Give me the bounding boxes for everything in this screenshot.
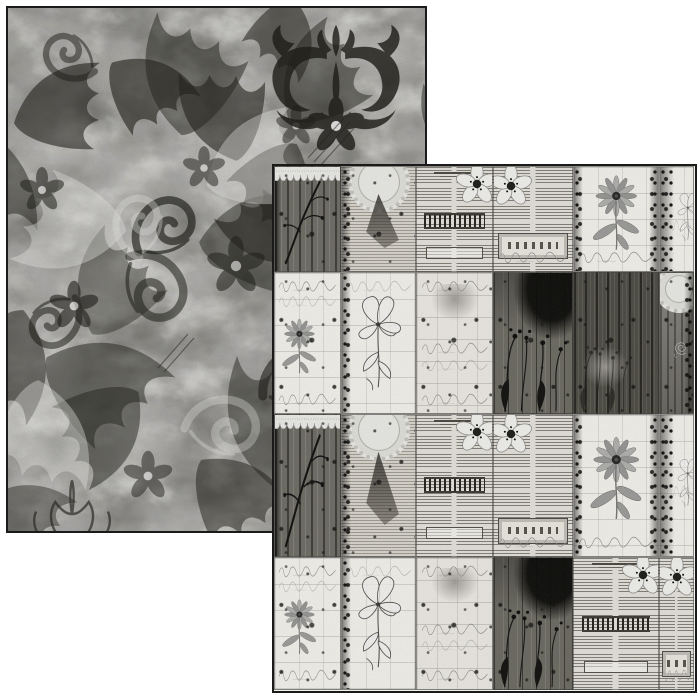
ticket-barcode <box>424 477 486 493</box>
torn-edge <box>574 167 583 271</box>
handwriting-line <box>421 340 489 356</box>
wild-plants-silhouette-icon <box>497 597 566 689</box>
ticket-barcode <box>582 616 651 632</box>
handwriting-line <box>421 357 489 373</box>
pressed-blossom-icon <box>659 557 694 600</box>
botanical-sketch-icon <box>349 279 407 405</box>
branch-silhouette-icon <box>282 171 334 265</box>
card-script-daisy <box>274 272 341 414</box>
torn-edge <box>342 167 351 271</box>
handwriting-line <box>421 563 489 579</box>
front-sheet-collage <box>272 164 697 693</box>
card-floral-daisy <box>573 414 659 557</box>
handwriting-line <box>421 391 489 407</box>
lace-trim <box>274 414 341 429</box>
card-wood-plants <box>493 557 573 690</box>
wild-plants-silhouette-icon <box>497 315 571 413</box>
card-sketch-lily <box>341 272 416 414</box>
painted-daisy-icon <box>581 423 652 544</box>
handwriting-line <box>278 563 337 579</box>
handwriting-line <box>278 667 337 683</box>
handwriting-line <box>662 217 692 233</box>
ticket-ornament <box>508 527 557 534</box>
pressed-blossom-icon <box>454 414 493 455</box>
ticket-barcode <box>424 213 486 229</box>
torn-edge <box>342 273 351 413</box>
pressed-blossom-icon <box>493 166 534 209</box>
pressed-blossom-icon <box>454 166 493 207</box>
lace-trim <box>274 166 341 181</box>
torn-edge <box>684 273 693 413</box>
pressed-blossom-icon <box>620 557 659 598</box>
newsprint-notice-box <box>426 247 483 259</box>
handwriting-line <box>578 534 654 550</box>
handwriting-line <box>421 667 489 683</box>
handwriting-line <box>278 391 337 407</box>
card-wood-branch <box>274 166 341 272</box>
torn-edge <box>649 167 658 271</box>
newsprint-notice-box <box>584 661 648 673</box>
handwriting-line <box>498 534 568 550</box>
card-floral-daisy <box>573 166 659 272</box>
handwriting-line <box>498 249 568 265</box>
ticket-ornament <box>667 660 687 667</box>
card-script-daisy <box>274 557 341 690</box>
dark-edge-band <box>275 415 281 556</box>
twigs-silhouette-icon <box>577 336 635 413</box>
handwriting-line <box>278 278 337 294</box>
product-photo <box>0 0 700 700</box>
pressed-blossom-icon <box>493 414 534 457</box>
handwriting-line <box>346 278 412 294</box>
handwriting-line <box>578 249 654 265</box>
card-news-blossom <box>573 557 659 690</box>
branch-silhouette-icon <box>282 421 334 548</box>
handwriting-line <box>421 637 489 653</box>
card-floral-edge <box>659 414 694 557</box>
handwriting-line <box>662 483 692 499</box>
card-floral-edge <box>659 166 694 272</box>
torn-edge <box>649 415 658 556</box>
card-lace-news <box>341 414 416 557</box>
handwriting-line <box>662 667 692 683</box>
watercolor-daisy-icon <box>276 582 323 679</box>
card-lace-news <box>341 166 416 272</box>
card-script-pale <box>416 557 493 690</box>
handwriting-line <box>346 563 412 579</box>
card-wood-plants <box>493 272 573 414</box>
card-news-ticket <box>493 414 573 557</box>
handwriting-line <box>421 278 489 294</box>
card-news-blossom <box>416 166 493 272</box>
card-lace-rose <box>659 272 694 414</box>
botanical-sketch-icon <box>349 563 407 681</box>
handwriting-line <box>421 621 489 637</box>
card-news-ticket <box>659 557 694 690</box>
card-news-blossom <box>416 414 493 557</box>
collage-card-grid <box>274 166 695 691</box>
torn-edge <box>574 415 583 556</box>
card-wood-planks <box>573 272 659 414</box>
torn-edge <box>342 415 351 556</box>
dark-fabric-drape <box>358 452 399 525</box>
watercolor-daisy-icon <box>276 298 323 402</box>
card-script-pale <box>416 272 493 414</box>
dark-edge-band <box>275 167 281 271</box>
card-wood-branch <box>274 414 341 557</box>
ticket-ornament <box>508 242 557 249</box>
card-news-ticket <box>493 166 573 272</box>
newsprint-notice-box <box>426 527 483 539</box>
card-sketch-lily <box>341 557 416 690</box>
